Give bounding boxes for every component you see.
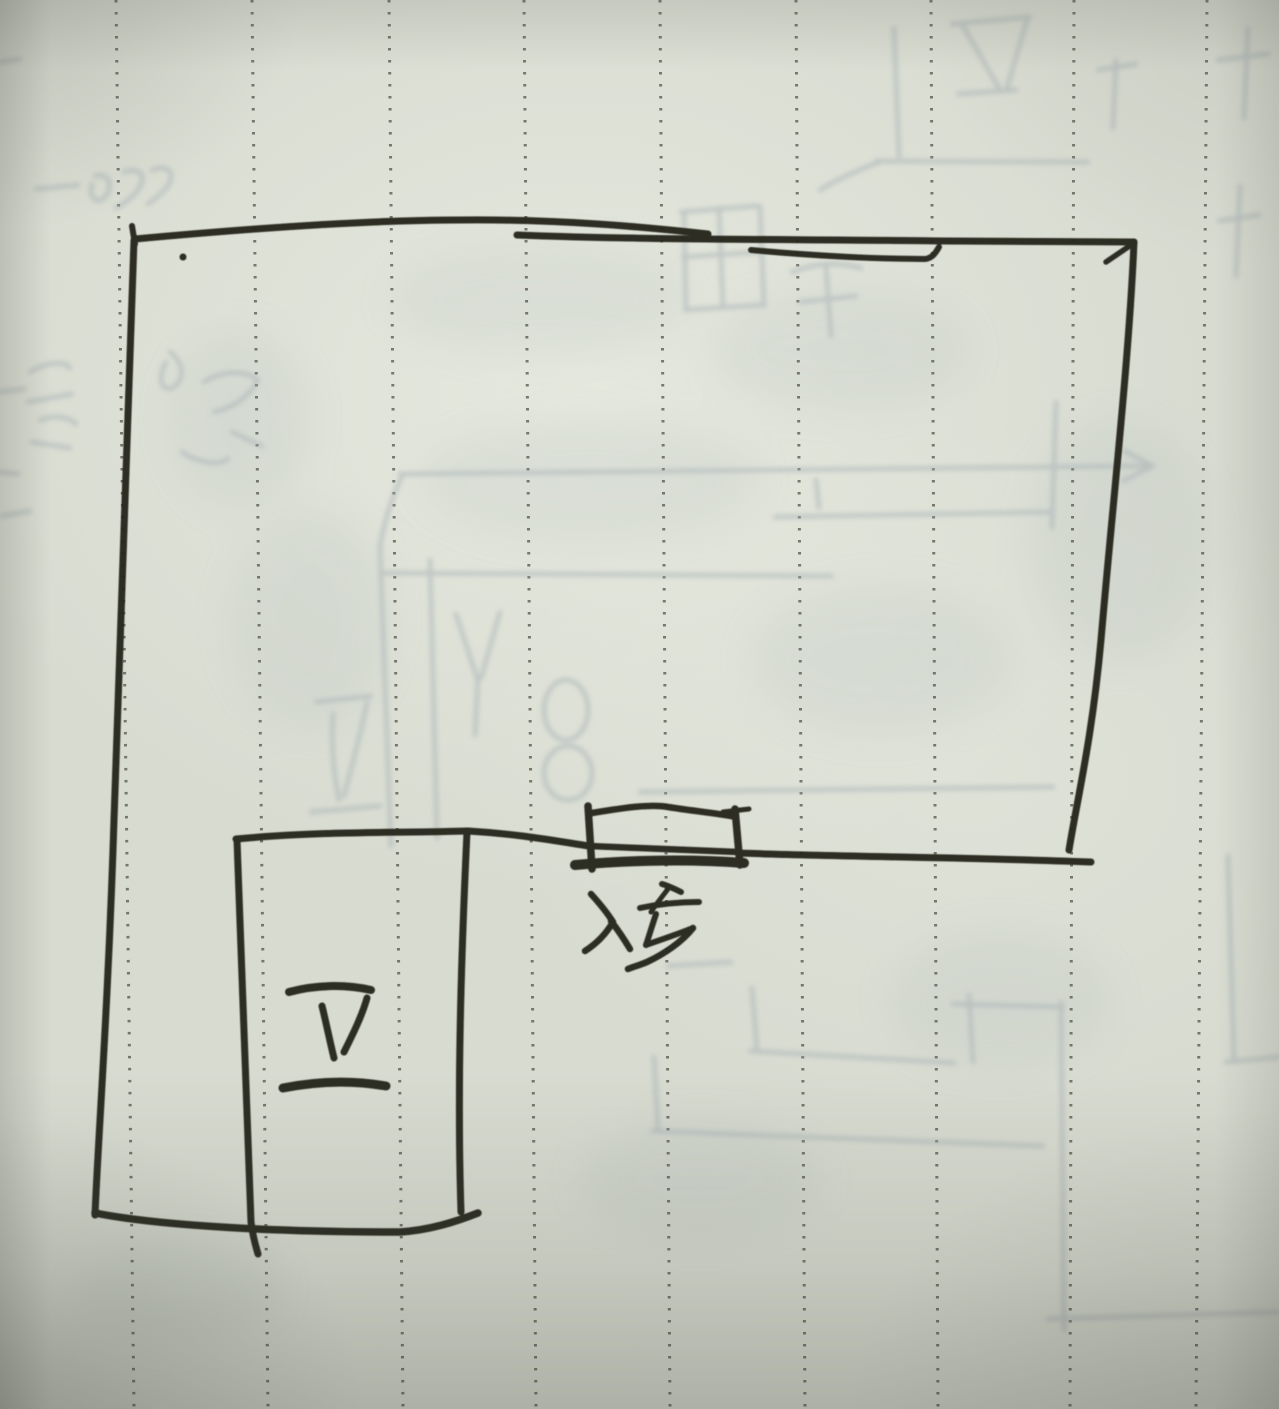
left-wall [95, 240, 134, 1215]
door-right-post [735, 809, 740, 865]
bathroom-left-wall [237, 840, 258, 1254]
door-right-post-serif [723, 809, 749, 812]
bottom-wall [95, 1213, 478, 1232]
top-wall-stroke-2 [517, 235, 1134, 242]
sketch-canvas [0, 0, 1279, 1409]
bathroom-right-wall [459, 832, 467, 1212]
top-wall-stroke-3 [751, 247, 939, 259]
notebook-photo: 卫 入户 [0, 0, 1279, 1409]
door-top-edge [592, 806, 736, 817]
entry-wall-through-door [589, 846, 738, 852]
top-right-corner-tick [1106, 245, 1131, 262]
entry-wall-right-segment [738, 853, 1091, 862]
entry-wall-left-segment [236, 831, 589, 846]
door-bottom-edge [575, 861, 744, 865]
entrance-label [585, 884, 699, 969]
ink-speck [180, 254, 187, 261]
entrance-door-symbol [575, 806, 749, 869]
bathroom-label [283, 986, 386, 1088]
